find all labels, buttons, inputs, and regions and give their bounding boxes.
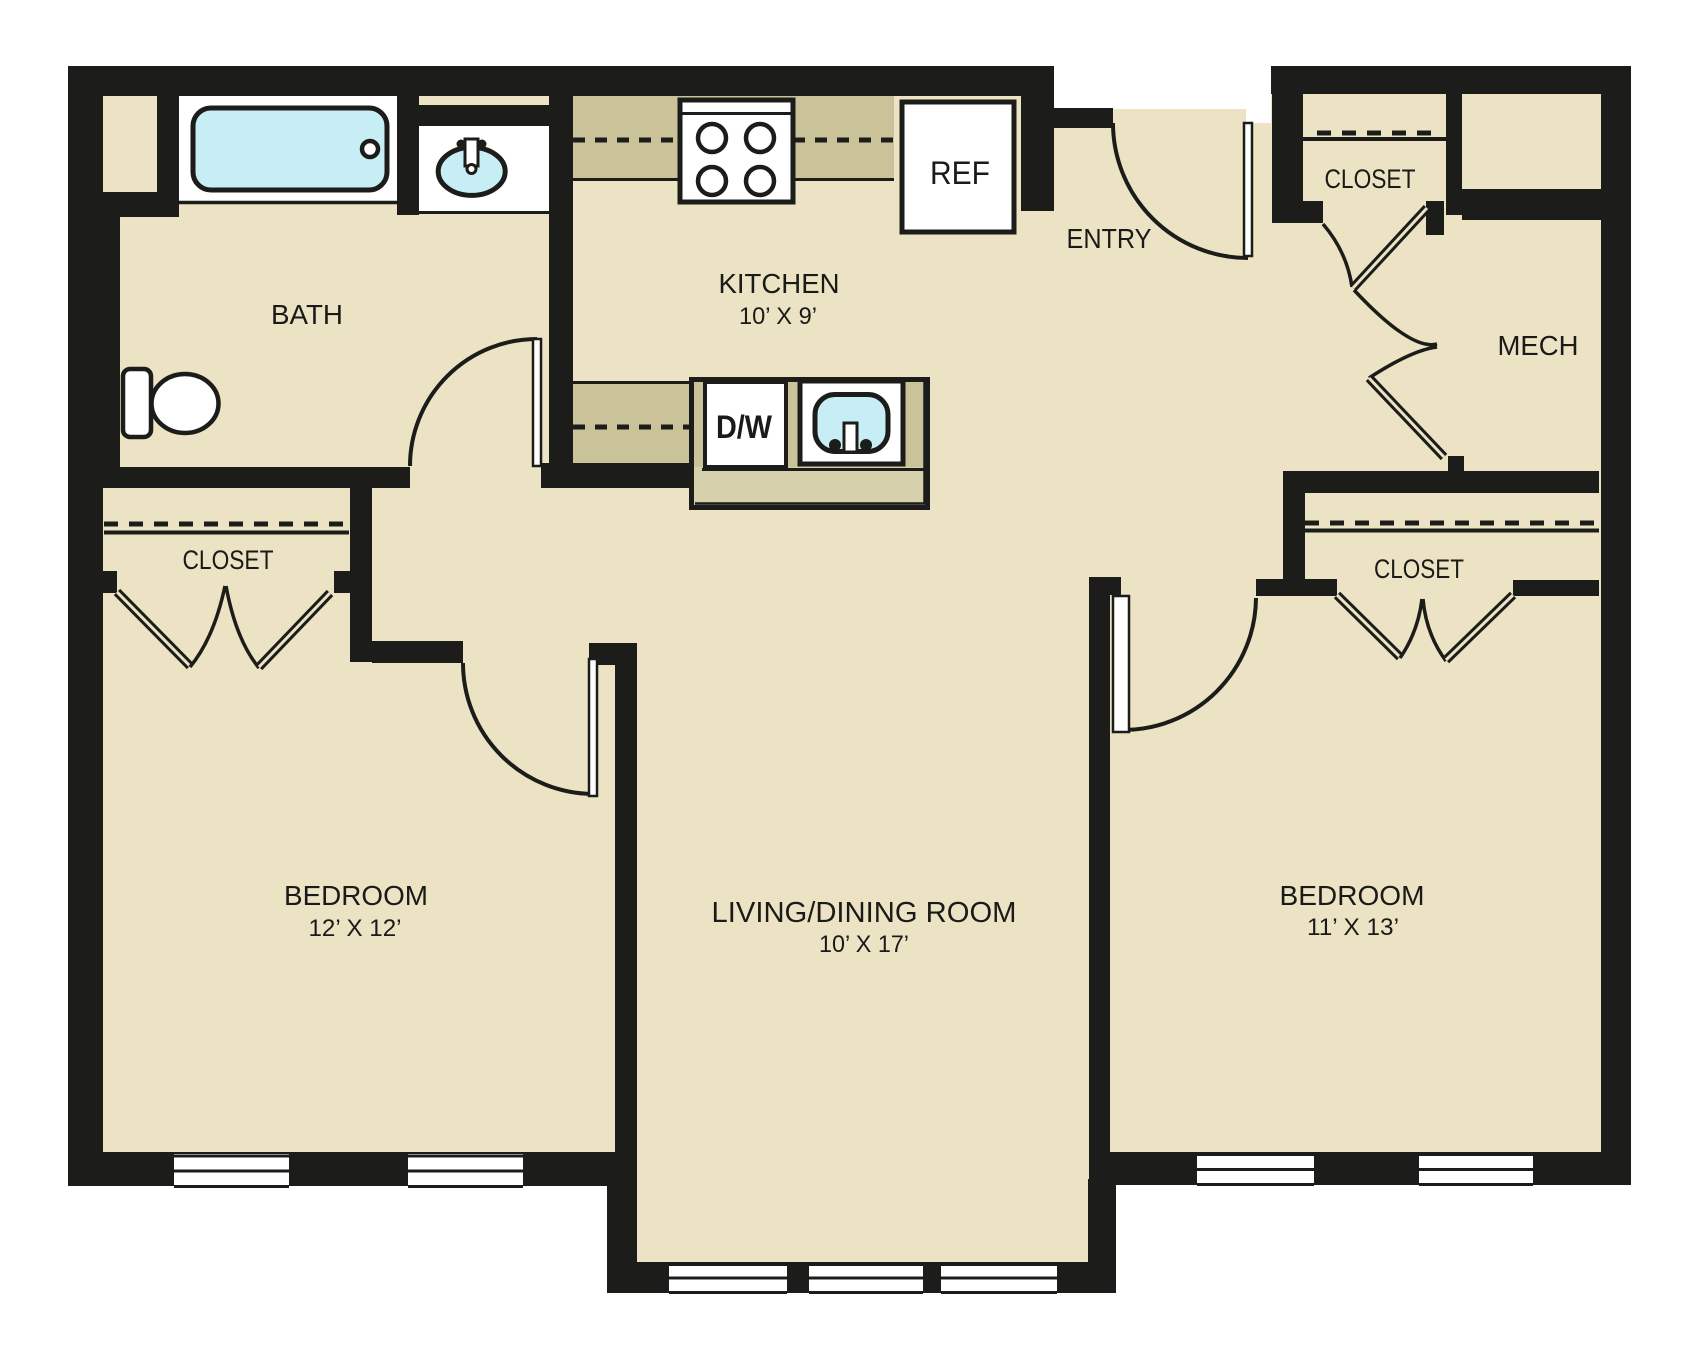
svg-text:10’ X 9’: 10’ X 9’ <box>739 303 817 330</box>
svg-text:ENTRY: ENTRY <box>1067 223 1152 254</box>
svg-text:BEDROOM: BEDROOM <box>284 880 428 911</box>
svg-text:REF: REF <box>930 155 990 191</box>
svg-text:LIVING/DINING ROOM: LIVING/DINING ROOM <box>712 897 1017 929</box>
svg-text:MECH: MECH <box>1498 330 1579 361</box>
svg-text:KITCHEN: KITCHEN <box>719 268 840 299</box>
svg-text:10’ X 17’: 10’ X 17’ <box>819 931 909 958</box>
svg-text:BEDROOM: BEDROOM <box>1280 880 1425 911</box>
svg-text:11’ X 13’: 11’ X 13’ <box>1307 914 1399 941</box>
svg-text:CLOSET: CLOSET <box>1325 164 1416 194</box>
svg-text:D/W: D/W <box>716 409 773 445</box>
svg-text:BATH: BATH <box>271 299 343 330</box>
svg-text:CLOSET: CLOSET <box>1374 554 1464 584</box>
svg-text:CLOSET: CLOSET <box>183 545 274 575</box>
svg-text:12’ X 12’: 12’ X 12’ <box>309 915 402 942</box>
